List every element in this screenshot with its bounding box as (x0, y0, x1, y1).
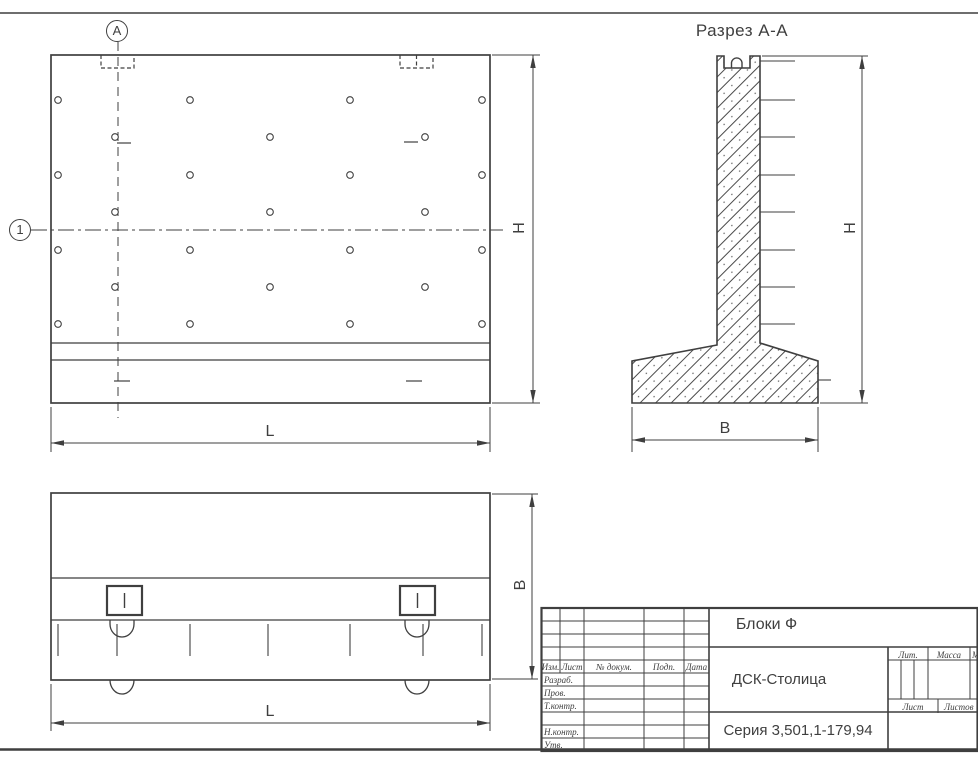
tb-row-nkontr: Н.контр. (544, 727, 579, 737)
section-dim-b: B (705, 420, 745, 438)
plan-dim-b: B (512, 570, 530, 600)
axis-marker-1: 1 (9, 219, 31, 241)
tb-col-izm: Изм. (541, 662, 560, 672)
tb-row-razrab: Разраб. (544, 675, 573, 685)
section-title: Разрез А-А (662, 21, 822, 41)
tb-sheet-label: Лист (888, 702, 938, 712)
section-dim-h: H (842, 213, 860, 243)
title-block-product-name: Блоки Ф (709, 616, 824, 634)
section-view (632, 56, 868, 452)
axis-marker-a: А (106, 20, 128, 42)
tb-mass-label: Масса (928, 650, 970, 660)
tb-col-dokum: № докум. (584, 662, 644, 672)
tb-scale-label: Масштаб (972, 650, 978, 660)
front-dim-l: L (250, 423, 290, 441)
front-dim-h: H (511, 213, 529, 243)
tb-col-data: Дата (684, 662, 709, 672)
plan-view (51, 493, 538, 731)
anchor-grid (55, 97, 486, 328)
title-block-series: Серия 3,501,1-179,94 (712, 722, 884, 739)
tb-sheets-label: Листов (944, 702, 974, 712)
plan-dim-l: L (250, 703, 290, 721)
tb-lit-label: Лит. (888, 650, 928, 660)
tb-col-list: Лист (560, 662, 584, 672)
sheet-frame (0, 13, 978, 750)
front-view (31, 42, 540, 452)
section-anchor-ticks (760, 61, 831, 380)
tb-row-tkontr: Т.контр. (544, 701, 577, 711)
drawing-linework (0, 0, 978, 762)
plan-anchor-ticks (58, 624, 482, 656)
tb-col-podp: Подп. (644, 662, 684, 672)
tb-row-utv: Утв. (544, 740, 563, 750)
sheet: { "sheet": {"background": "#ffffff", "li… (0, 0, 978, 762)
title-block-organization: ДСК-Столица (709, 671, 849, 688)
tb-row-prov: Пров. (544, 688, 566, 698)
